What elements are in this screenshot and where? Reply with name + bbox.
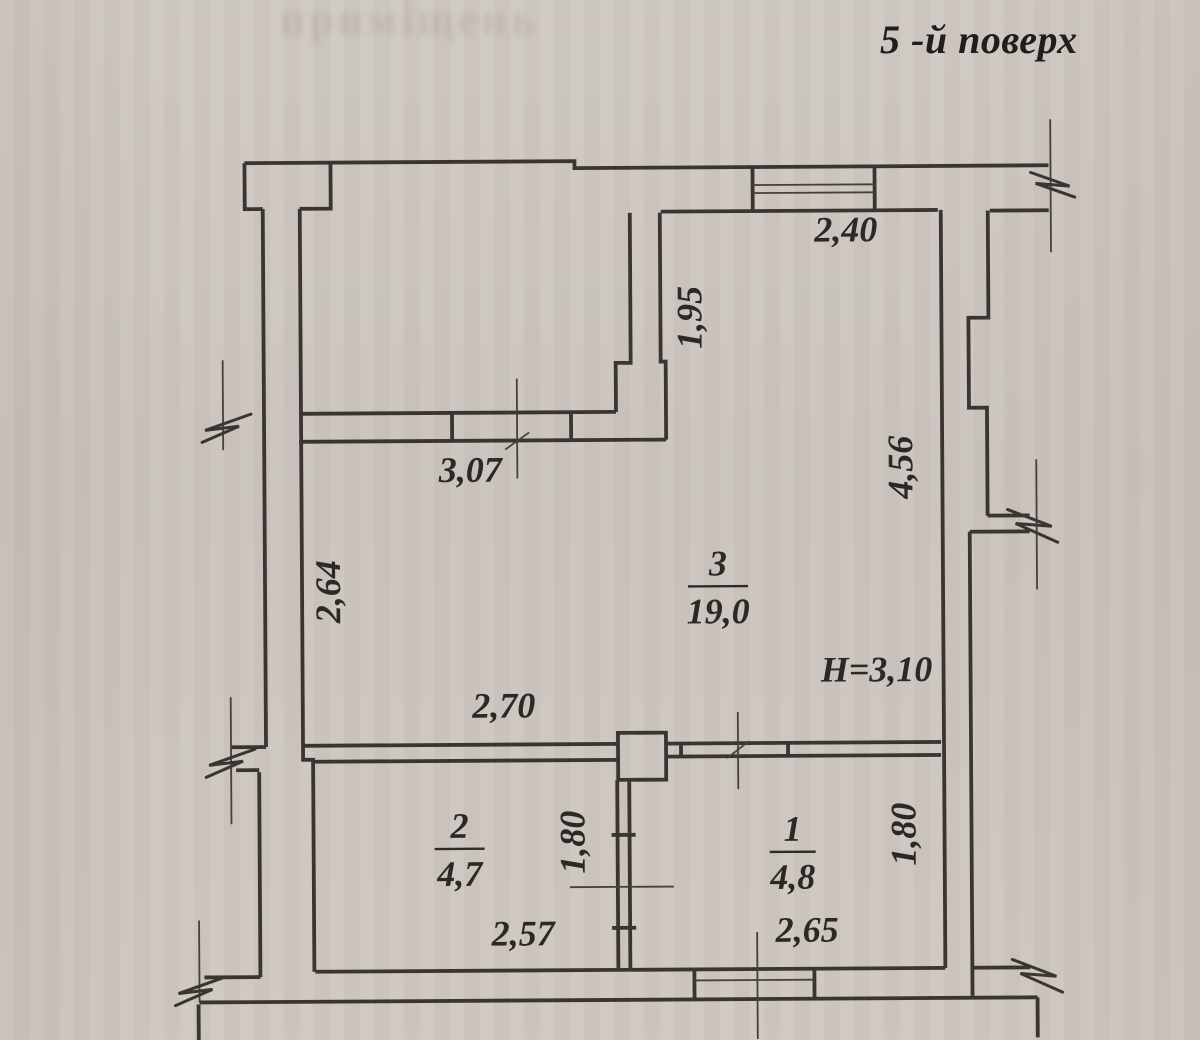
extension-line [231,697,232,824]
wall-line [617,780,618,970]
wall-line [970,532,973,996]
wall-line [661,210,938,212]
room-number: 1 [783,809,801,849]
dimension-label: 2,65 [775,910,839,950]
break-mark [1012,959,1062,992]
room-number: 3 [708,543,727,583]
extension-line [694,980,814,981]
wall-line [200,997,1038,1002]
dimension-label: 2,40 [813,209,877,249]
wall-line [301,412,616,414]
floorplan-scan: приміщень 5 -й поверх 2,401,953,074,562,… [0,0,1200,1040]
wall-line [660,213,666,440]
dimension-label: 2,64 [308,560,348,624]
room-area: 4,7 [436,854,484,894]
floorplan-svg: 2,401,953,074,562,64H=3,102,701,801,802,… [0,0,1200,1040]
extension-line [757,932,758,1039]
extension-line [570,887,674,888]
extension-line [753,192,875,193]
room-number: 2 [449,806,468,846]
room-area: 4,8 [769,857,815,897]
wall-line [244,163,262,209]
wall-line [313,760,618,762]
wall-line [259,772,260,977]
dimension-label: 1,80 [883,803,923,866]
wall-line [263,209,266,747]
dimension-label: 3,07 [438,450,504,490]
wall-line [244,158,1048,170]
room-area: 19,0 [687,591,750,631]
wall-line [941,210,946,968]
wall-line [666,755,941,757]
wall-line [968,211,990,516]
extension-line [753,184,875,185]
wall-line [618,733,666,780]
break-mark [1031,172,1075,197]
break-mark [202,414,251,442]
dimension-label: 2,70 [471,685,535,725]
plan-lines: 2,401,953,074,562,64H=3,102,701,801,802,… [170,119,1080,1040]
extension-line [223,360,224,450]
dimension-label: 4,56 [880,436,920,500]
dimension-label: H=3,10 [820,649,933,690]
extension-line [517,379,518,479]
wall-line [666,742,941,744]
wall-line [629,780,630,970]
dimension-label: 2,57 [491,913,557,953]
wall-line [299,440,666,442]
wall-line [303,744,618,746]
wall-line [615,213,631,412]
dimension-label: 1,80 [552,811,592,874]
dimension-label: 1,95 [669,286,709,349]
wall-line [299,163,330,209]
